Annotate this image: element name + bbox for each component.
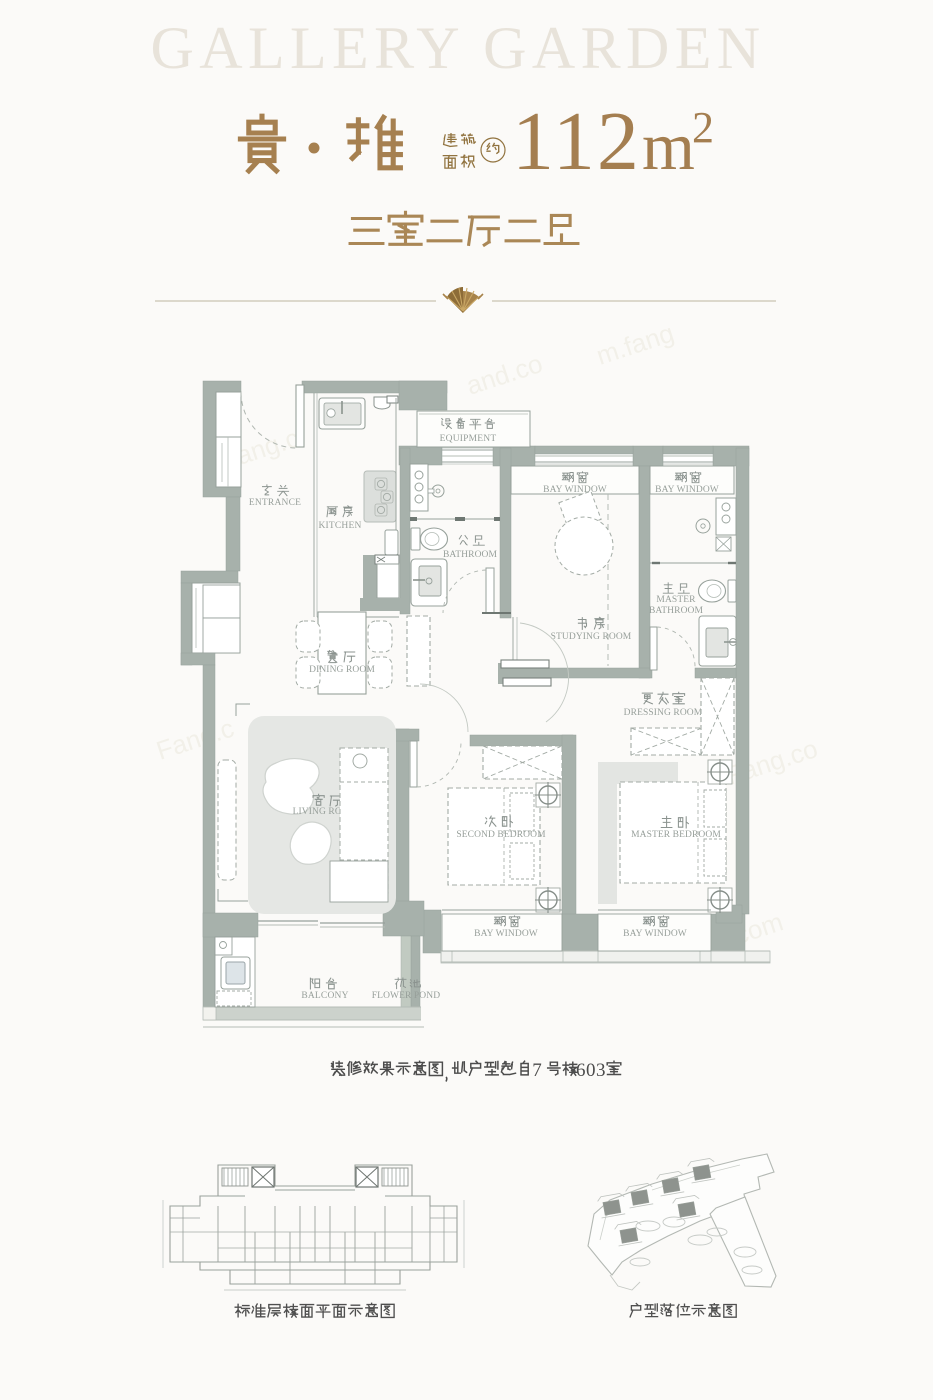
svg-text:BAY WINDOW: BAY WINDOW [474,929,538,939]
svg-text:GALLERY GARDEN: GALLERY GARDEN [150,15,765,81]
svg-text:BAY WINDOW: BAY WINDOW [623,929,687,939]
svg-text:Fang.c: Fang.c [153,713,238,766]
svg-text:m.fang: m.fang [593,318,678,371]
svg-text:FLOWER POND: FLOWER POND [372,991,440,1001]
svg-text:STUDYING ROOM: STUDYING ROOM [551,632,632,642]
svg-text:DRESSING ROOM: DRESSING ROOM [624,708,703,718]
svg-text:DINING ROOM: DINING ROOM [309,665,375,675]
svg-text:ang.c: ang.c [233,423,303,471]
svg-text:EQUIPMENT: EQUIPMENT [440,434,497,444]
svg-text:ENTRANCE: ENTRANCE [249,498,301,508]
svg-text:BATHROOM: BATHROOM [649,606,704,616]
svg-text:603: 603 [576,1060,606,1081]
svg-text:m: m [642,108,695,184]
svg-text:and.co: and.co [463,348,547,401]
svg-text:MASTER: MASTER [656,595,696,605]
svg-text:BALCONY: BALCONY [301,991,348,1001]
svg-text:2: 2 [692,103,714,152]
svg-text:KITCHEN: KITCHEN [318,521,361,531]
svg-text:BAY WINDOW: BAY WINDOW [543,485,607,495]
svg-text:112: 112 [512,95,641,188]
svg-text:SECOND BEDROOM: SECOND BEDROOM [456,830,546,840]
svg-text:BAY WINDOW: BAY WINDOW [655,485,719,495]
svg-text:MASTER BEDROOM: MASTER BEDROOM [631,830,721,840]
svg-text:BATHROOM: BATHROOM [443,550,498,560]
svg-text:7: 7 [532,1060,542,1081]
